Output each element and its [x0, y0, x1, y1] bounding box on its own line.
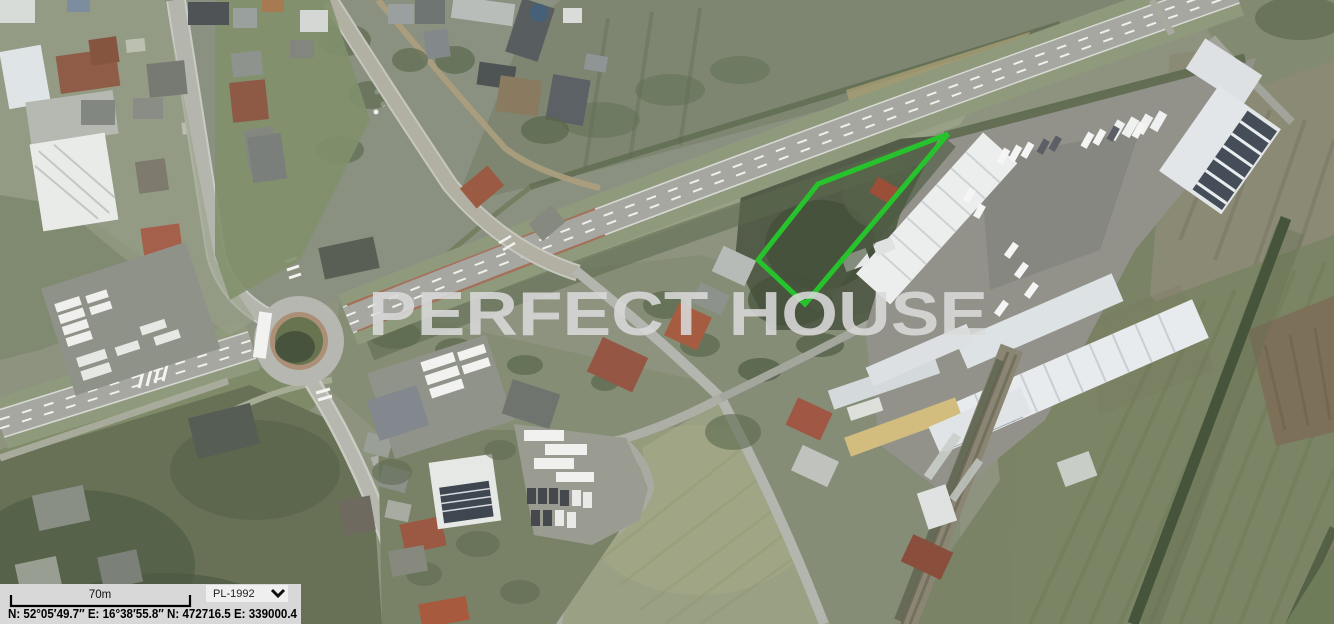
- svg-text:PERFECT HOUSE: PERFECT HOUSE: [368, 280, 988, 349]
- svg-text:PL-1992: PL-1992: [213, 588, 255, 600]
- svg-text:70m: 70m: [89, 589, 111, 601]
- svg-text:N: 52°05′49.7″ E: 16°38′55.8″: N: 52°05′49.7″ E: 16°38′55.8″ N: 472716.…: [8, 606, 298, 621]
